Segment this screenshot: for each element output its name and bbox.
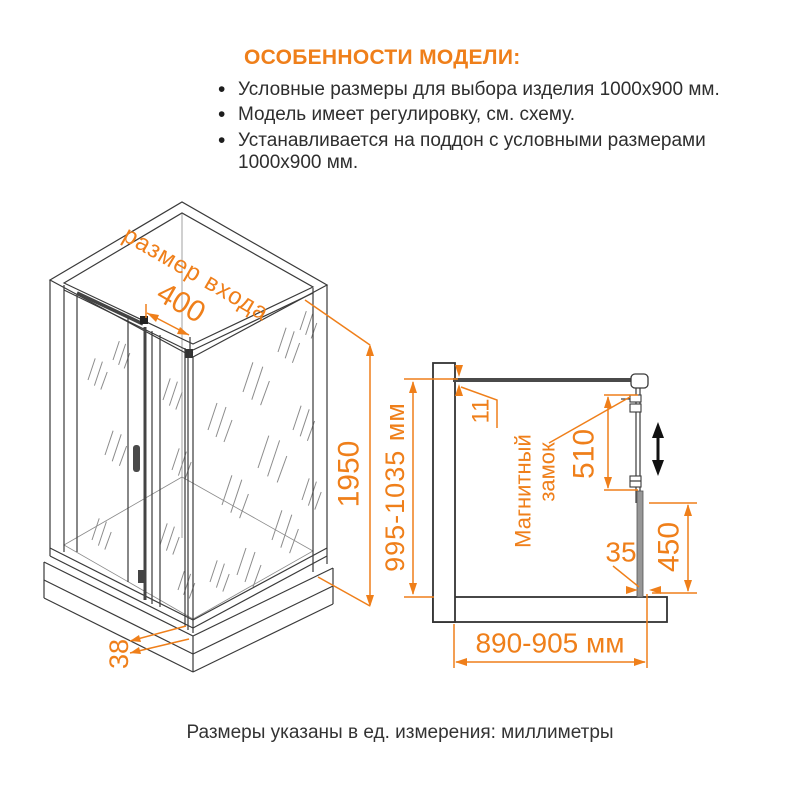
- profile-gap-value: 35: [605, 537, 636, 568]
- tray-height-value: 38: [104, 639, 134, 669]
- product-spec-page: ОСОБЕННОСТИ МОДЕЛИ: Условные размеры для…: [0, 0, 800, 800]
- plan-side-glass: [637, 491, 643, 597]
- height-dimension: 1950: [305, 300, 374, 607]
- magnet-lock-brackets: [621, 395, 641, 487]
- tray-height-dimension: 38: [104, 626, 189, 669]
- glass-sparkle-hatching: [88, 311, 321, 598]
- magnet-lock-label-line2: замок: [535, 442, 560, 502]
- lock-length-value: 510: [568, 429, 601, 479]
- side-lower-value: 450: [653, 522, 686, 572]
- overlap-dimension: 11: [455, 365, 497, 428]
- lock-length-dimension: 510: [568, 395, 639, 490]
- door-top-rail: [77, 293, 143, 324]
- height-range-value: 995-1035 мм: [380, 402, 410, 572]
- technical-drawing: размер входа 400 1950: [0, 0, 800, 800]
- door-handle: [133, 445, 140, 472]
- plan-tray: [433, 597, 667, 622]
- height-value: 1950: [333, 441, 366, 508]
- width-range-value: 890-905 мм: [475, 628, 624, 659]
- side-lower-dimension: 450: [649, 503, 697, 593]
- iso-drawing: размер входа 400 1950: [44, 202, 374, 672]
- plan-wall-profile: [433, 363, 455, 622]
- plan-corner-cap: [631, 374, 648, 388]
- overlap-value: 11: [468, 399, 495, 424]
- corner-cap: [185, 349, 193, 358]
- units-footnote: Размеры указаны в ед. измерения: миллиме…: [0, 722, 800, 744]
- adjustment-arrow-icon: [652, 422, 664, 476]
- magnet-lock-label-line1: Магнитный: [511, 434, 536, 548]
- door-roller: [140, 316, 148, 324]
- door-bottom-guide: [138, 570, 145, 583]
- plan-drawing: 995-1035 мм 11 Магнитный замок: [380, 363, 697, 668]
